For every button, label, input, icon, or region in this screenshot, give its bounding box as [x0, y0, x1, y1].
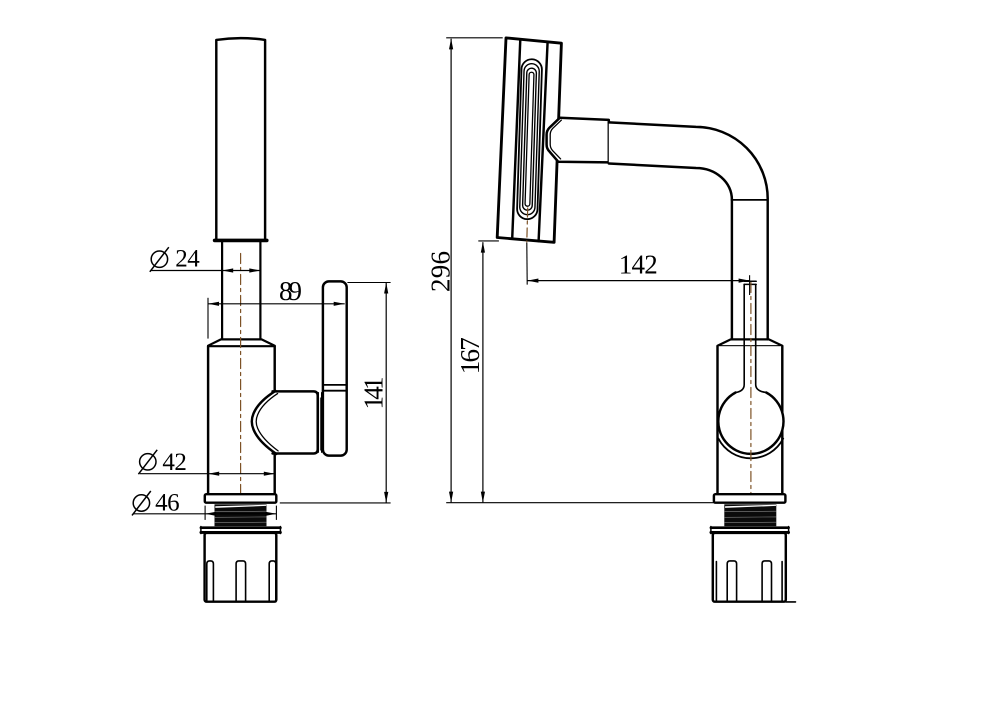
- svg-text:46: 46: [155, 489, 180, 516]
- svg-text:89: 89: [279, 276, 302, 306]
- svg-text:24: 24: [175, 245, 200, 272]
- svg-text:42: 42: [162, 449, 187, 476]
- svg-text:142: 142: [619, 250, 658, 280]
- svg-text:296: 296: [426, 251, 456, 292]
- svg-text:167: 167: [455, 337, 485, 374]
- svg-text:141: 141: [359, 377, 389, 410]
